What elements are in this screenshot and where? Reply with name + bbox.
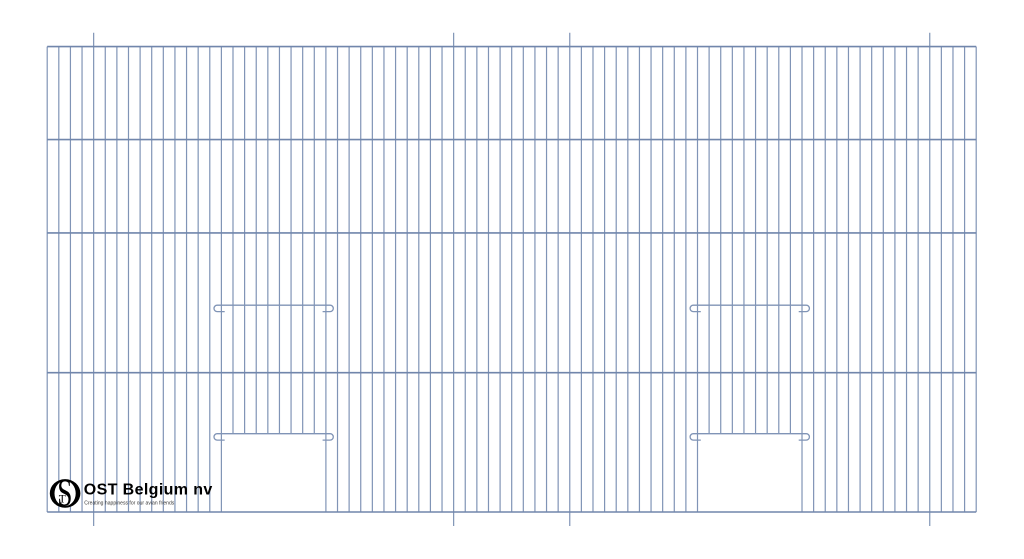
svg-text:T: T bbox=[59, 494, 66, 506]
svg-text:OST Belgium nv: OST Belgium nv bbox=[84, 481, 213, 498]
svg-text:Creating happiness for our avi: Creating happiness for our avian friends bbox=[84, 501, 175, 507]
